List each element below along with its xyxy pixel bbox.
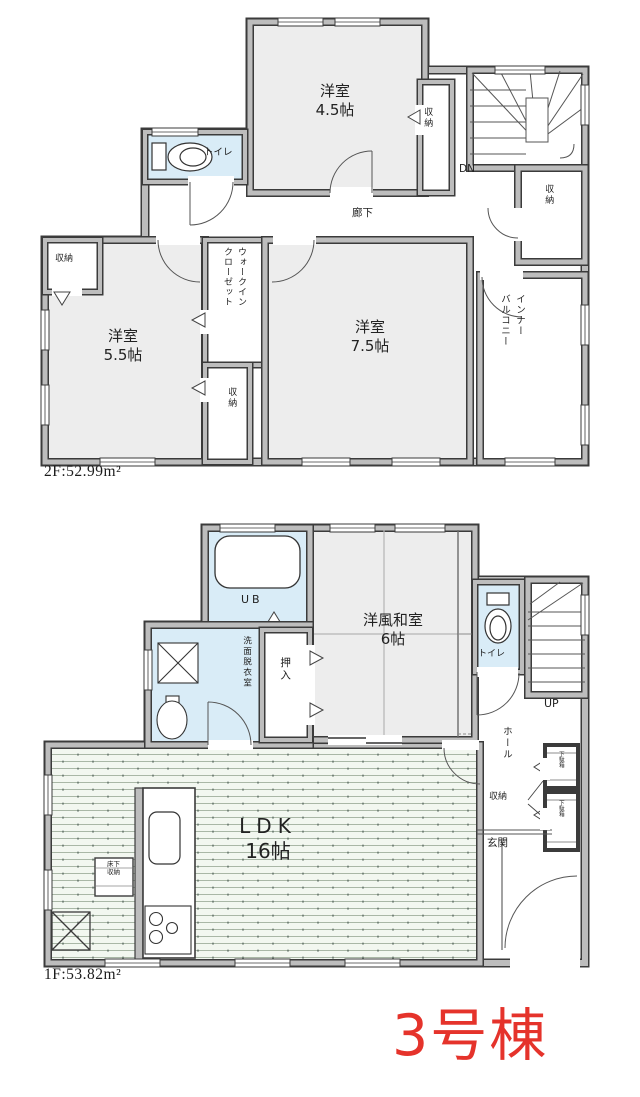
room55-name: 洋室 [73,327,173,346]
toilet-icon-2f [152,143,212,171]
washitsu-label: 洋風和室 6帖 [343,611,443,649]
ldk-size: 16帖 [218,839,318,864]
room45-size: 4.5帖 [285,101,385,120]
washroom-label: 洗面脱衣室 [241,636,252,689]
closet-room45 [420,82,452,193]
inner-balcony-label: バルコニー インナー [497,294,526,347]
toilet-icon-1f [485,593,511,643]
closet-below-wic [205,365,250,462]
wic-col-right: ウォークイン [235,247,248,307]
unit-bath-label: UB [241,593,263,607]
closet-below-wic-label: 収納 [225,387,236,409]
balcony-col-right: インナー [512,294,526,347]
shoe-box-upper-label: 下駄箱 [557,751,564,768]
hall-label: ホール [500,726,512,761]
oshiire-label: 押入 [278,657,291,682]
unit-bath [205,528,310,629]
room75-label: 洋室 7.5帖 [320,318,420,356]
stairs-1f [528,580,585,695]
floor1-area-label: 1F:53.82m² [44,966,121,984]
closet-top-left [45,240,100,305]
floorplan-page: 洋室 4.5帖 収納 DN 収納 トイレ 廊下 収納 洋室 5.5帖 クローゼッ… [0,0,640,1097]
underfloor-storage-label: 床下収納 [105,861,122,877]
inner-balcony [480,275,585,462]
room75-size: 7.5帖 [320,337,420,356]
toilet-1f-label: トイレ [478,649,505,660]
floor2-area-label: 2F:52.99m² [44,463,121,481]
room55-size: 5.5帖 [73,346,173,365]
oshiire-closet [262,630,323,740]
floor2-plan [40,10,590,480]
stairs-2f [470,70,585,168]
balcony-col-left: バルコニー [497,294,511,347]
washitsu-name: 洋風和室 [343,611,443,630]
room45-name: 洋室 [285,82,385,101]
toilet-2f-label: トイレ [204,147,233,159]
room55-label: 洋室 5.5帖 [73,327,173,365]
unit-number-label: 3号棟 [392,990,548,1072]
ldk-label: LDK 16帖 [218,814,318,864]
walk-in-closet-label: クローゼット ウォークイン [221,247,248,307]
ldk-name: LDK [218,814,318,839]
closet-right-2f [513,168,585,262]
stairs-up-label: UP [544,697,559,711]
stairs-down-label: DN [459,163,475,176]
shoe-box-lower-label: 下駄箱 [557,800,564,817]
kitchen-sink-icon [149,812,180,864]
wic-col-left: クローゼット [221,247,234,307]
bathtub-icon [215,536,300,588]
storage-1f-label: 収納 [489,792,507,803]
closet-top-left-label: 収納 [55,254,73,265]
kitchen-counter [135,788,195,960]
room75-name: 洋室 [320,318,420,337]
entrance-label: 玄関 [487,837,508,850]
washitsu-size: 6帖 [343,630,443,649]
washing-machine-icon [158,643,198,683]
room45-closet-label: 収納 [421,107,432,129]
hallway-label: 廊下 [352,207,373,220]
storage-right-2f-label: 収納 [542,184,553,206]
room45-label: 洋室 4.5帖 [285,82,385,120]
